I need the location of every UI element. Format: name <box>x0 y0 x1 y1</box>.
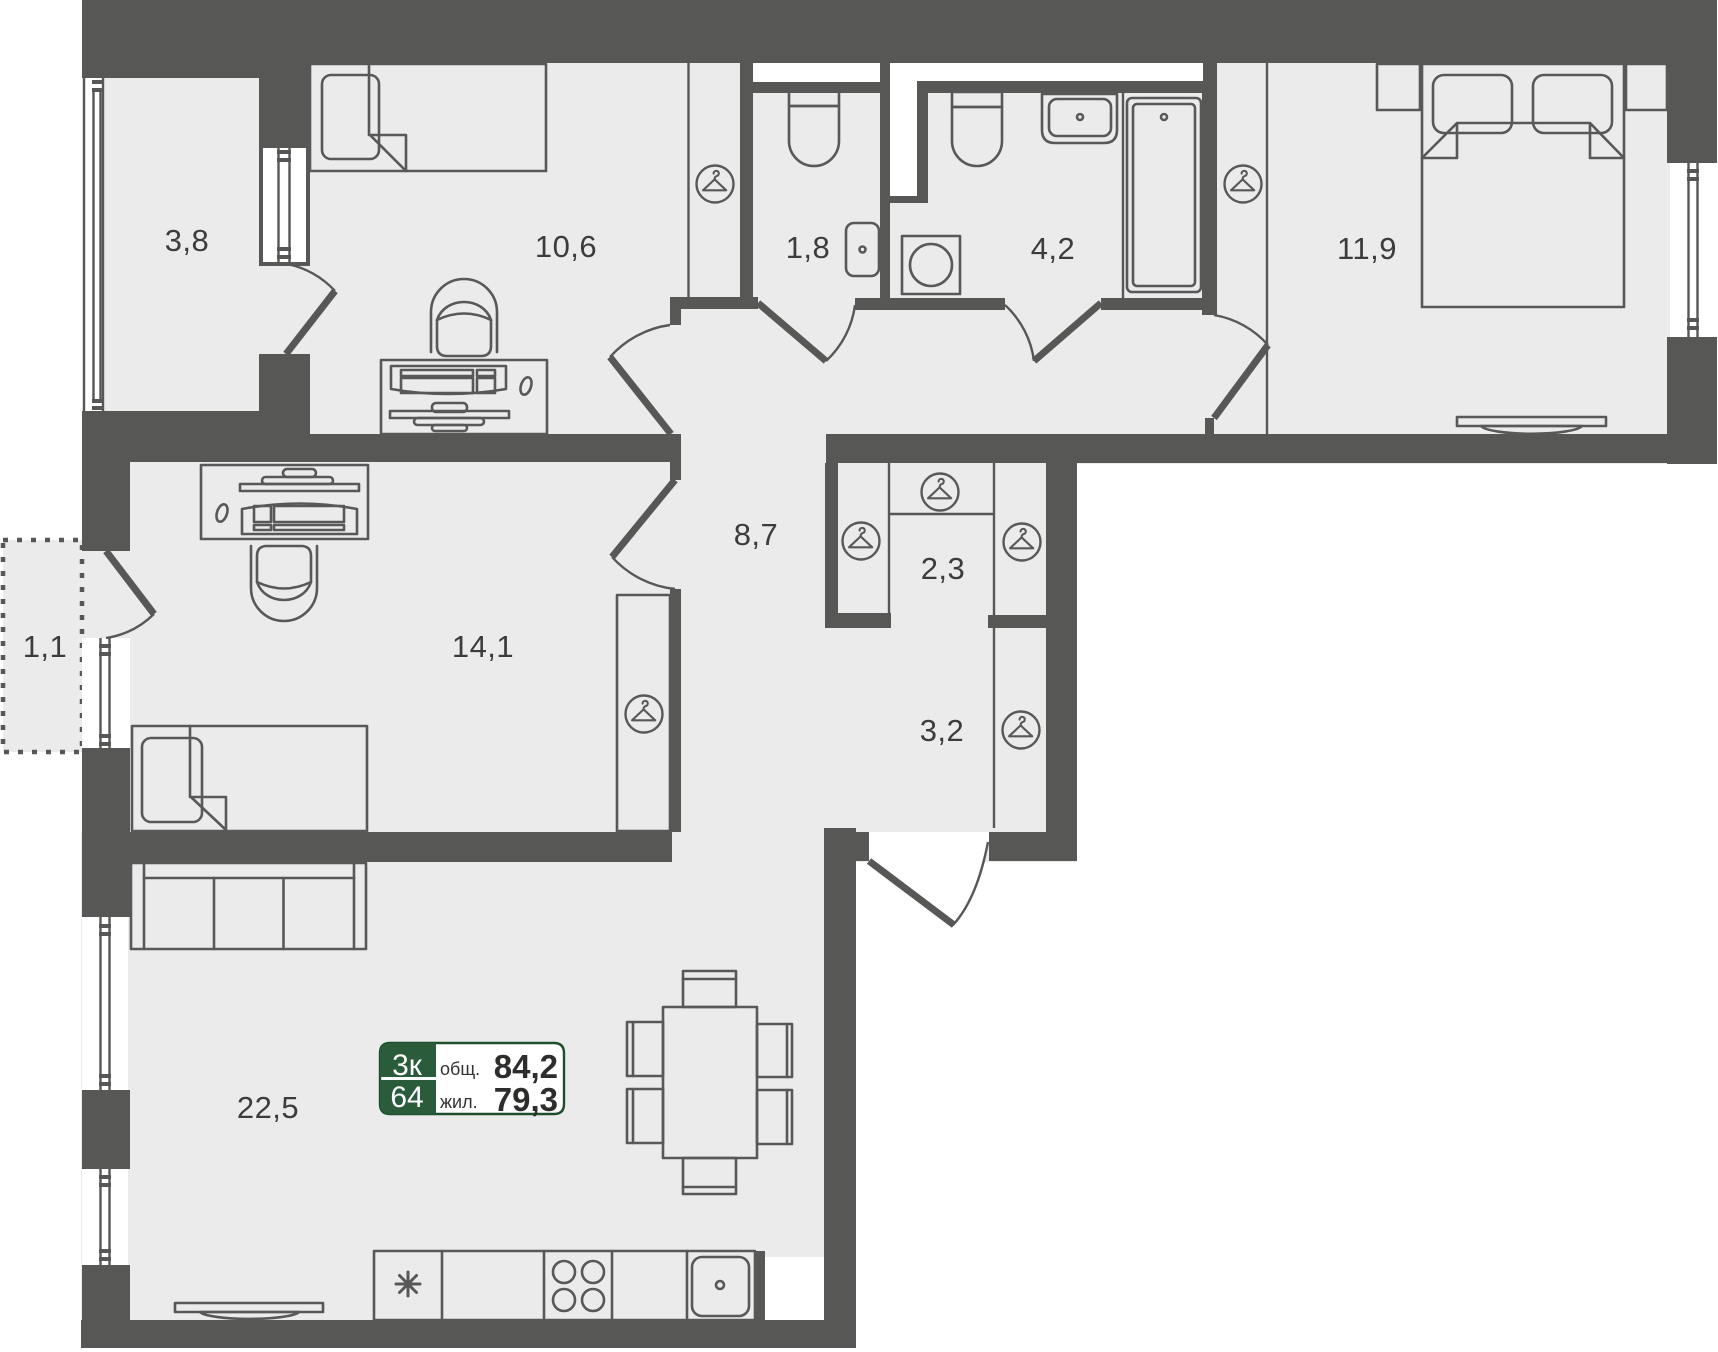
svg-text:3,8: 3,8 <box>165 223 210 258</box>
svg-text:22,5: 22,5 <box>237 1090 299 1125</box>
svg-text:84,2: 84,2 <box>494 1048 558 1085</box>
svg-text:общ.: общ. <box>440 1059 480 1079</box>
svg-text:8,7: 8,7 <box>734 517 779 552</box>
svg-text:3,2: 3,2 <box>920 713 965 748</box>
svg-text:2,3: 2,3 <box>921 551 966 586</box>
svg-text:4,2: 4,2 <box>1031 231 1076 266</box>
svg-text:жил.: жил. <box>440 1092 478 1112</box>
svg-text:1,8: 1,8 <box>786 230 831 265</box>
svg-text:11,9: 11,9 <box>1337 231 1397 266</box>
svg-text:1,1: 1,1 <box>23 629 68 664</box>
svg-text:10,6: 10,6 <box>535 229 597 264</box>
svg-text:64: 64 <box>390 1081 423 1114</box>
svg-text:3к: 3к <box>392 1049 423 1082</box>
svg-text:79,3: 79,3 <box>494 1081 558 1118</box>
svg-text:14,1: 14,1 <box>452 629 514 664</box>
